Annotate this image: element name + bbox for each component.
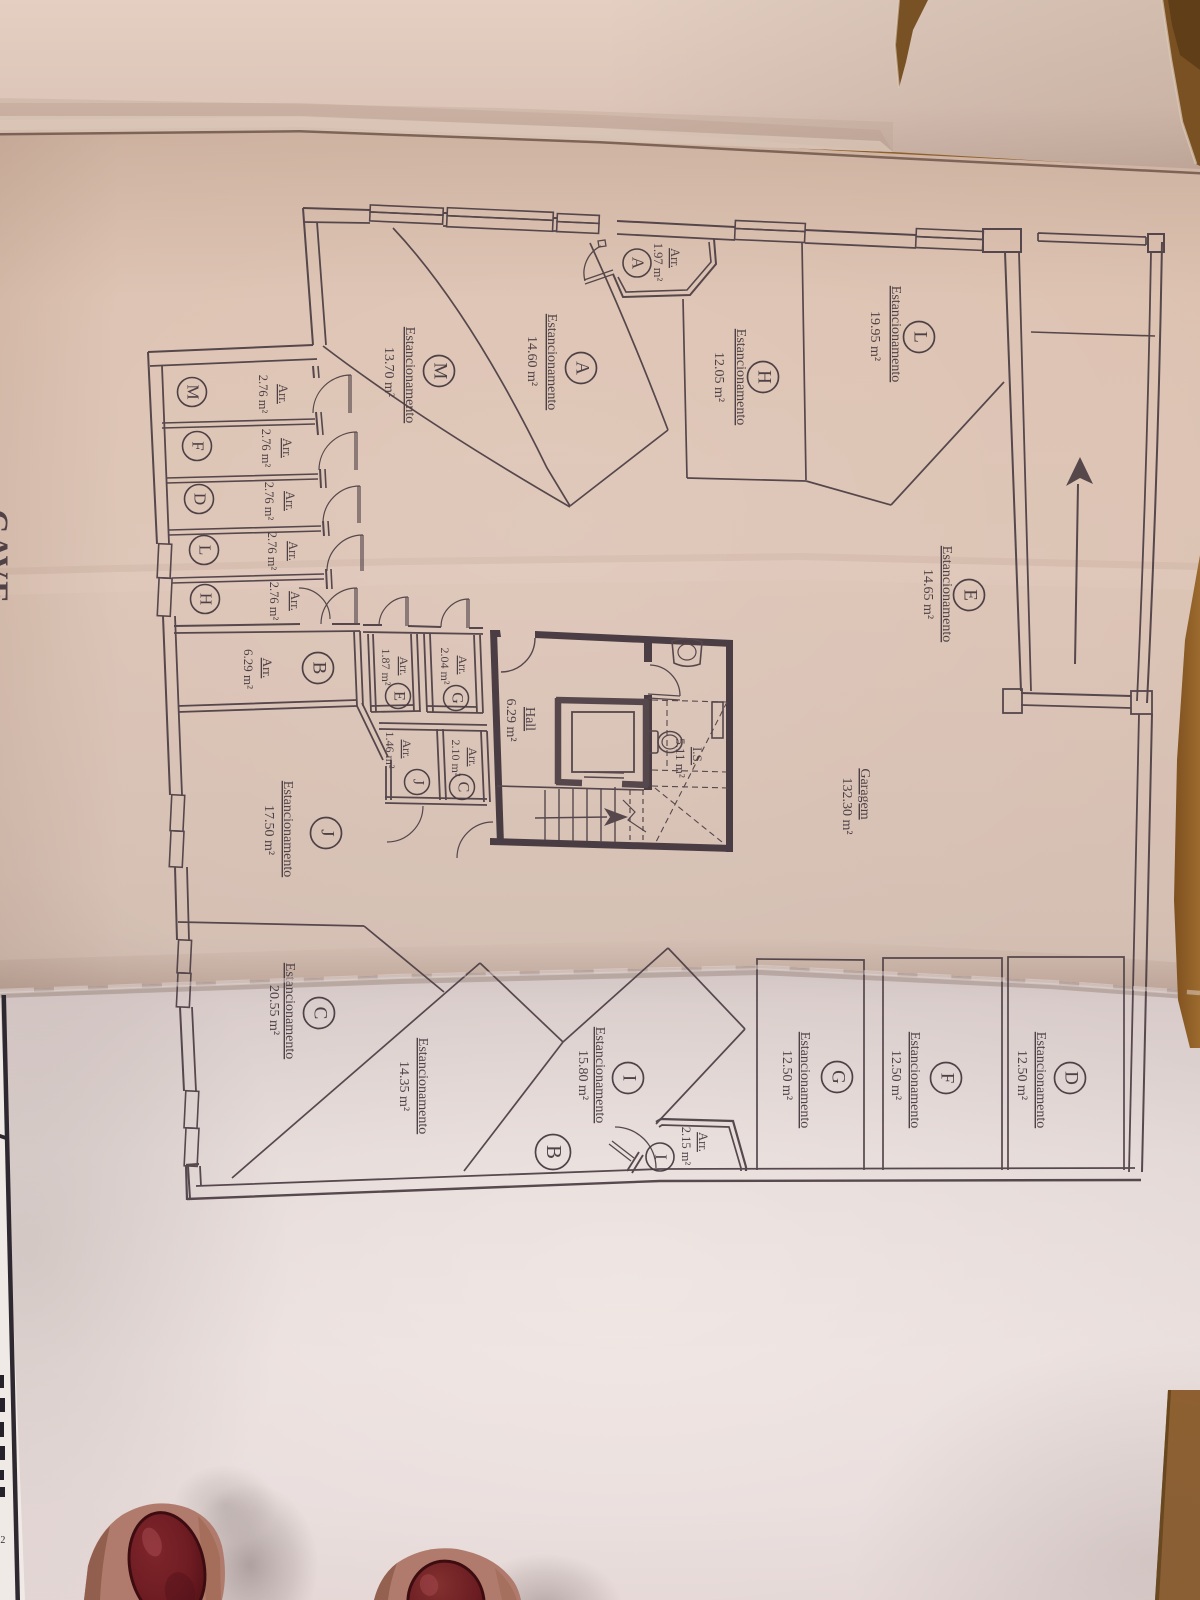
svg-text:Arr.: Arr. [668,248,682,268]
svg-text:C: C [455,782,472,793]
svg-text:B: B [309,662,330,675]
svg-text:J: J [410,779,427,785]
svg-text:I: I [619,1075,640,1081]
svg-text:Arr.: Arr. [397,657,411,676]
svg-text:Estancionamento: Estancionamento [280,781,295,877]
svg-text:13.70 m²: 13.70 m² [381,347,396,397]
svg-text:D: D [191,493,210,505]
svg-text:L: L [196,545,215,555]
svg-text:1.87 m²: 1.87 m² [379,649,393,686]
svg-text:6.29 m²: 6.29 m² [503,698,518,741]
svg-text:Arr.: Arr. [283,491,297,511]
svg-text:2.76 m²: 2.76 m² [262,482,276,521]
svg-text:15.80 m²: 15.80 m² [575,1050,590,1100]
svg-text:I.S.: I.S. [690,747,705,765]
svg-text:Arr.: Arr. [260,658,275,679]
svg-text:Estancionamento: Estancionamento [282,963,297,1059]
svg-text:E: E [960,589,981,601]
svg-text:Hall: Hall [522,707,537,731]
svg-text:Arr.: Arr. [280,438,294,458]
svg-text:Arr.: Arr. [456,656,470,675]
svg-text:Estancionamento: Estancionamento [544,314,559,410]
svg-text:A: A [572,361,593,375]
svg-text:6.29 m²: 6.29 m² [241,649,256,689]
svg-text:1.97 m²: 1.97 m² [651,243,665,282]
svg-text:G: G [828,1070,849,1084]
svg-text:Arr.: Arr. [466,748,480,767]
svg-text:H: H [197,593,216,605]
svg-text:2.76 m²: 2.76 m² [265,532,279,571]
svg-text:I: I [652,1154,671,1160]
svg-text:14.35 m²: 14.35 m² [396,1061,411,1111]
svg-text:L: L [910,331,931,343]
svg-text:Estancionamento: Estancionamento [797,1032,812,1128]
svg-text:C: C [310,1007,331,1020]
svg-text:17.50 m²: 17.50 m² [261,805,276,855]
svg-text:2.15 m²: 2.15 m² [679,1127,693,1166]
svg-text:14.65 m²: 14.65 m² [920,569,935,619]
svg-text:Estancionamento: Estancionamento [888,286,903,382]
svg-text:F: F [189,441,208,450]
svg-text:5.11 m²: 5.11 m² [673,738,688,778]
svg-text:E: E [391,691,408,701]
svg-text:Estancionamento: Estancionamento [592,1027,607,1123]
svg-text:CAVE: CAVE [0,509,14,604]
svg-text:H: H [754,370,775,384]
svg-text:A: A [629,257,648,270]
svg-text:M: M [430,363,451,380]
svg-text:-2: -2 [0,1535,5,1546]
svg-text:Garagem: Garagem [857,768,872,819]
svg-text:Estancionamento: Estancionamento [907,1032,922,1128]
svg-text:132.30 m²: 132.30 m² [839,777,854,834]
svg-text:Arr.: Arr. [400,740,414,759]
svg-text:D: D [1061,1071,1082,1085]
svg-text:20.55 m²: 20.55 m² [266,985,281,1035]
svg-text:19.95 m²: 19.95 m² [867,311,882,361]
svg-text:Estancionamento: Estancionamento [1033,1032,1048,1128]
svg-text:14.60 m²: 14.60 m² [524,336,539,386]
svg-text:J: J [317,829,338,836]
svg-text:Arr.: Arr. [276,384,290,404]
svg-text:Arr.: Arr. [286,541,300,561]
svg-text:Arr.: Arr. [696,1132,710,1152]
svg-text:B: B [542,1145,566,1159]
svg-text:Estancionamento: Estancionamento [939,546,954,642]
svg-text:12.50 m²: 12.50 m² [779,1050,794,1100]
svg-text:M: M [184,384,203,399]
svg-text:12.50 m²: 12.50 m² [888,1050,903,1100]
svg-text:Arr.: Arr. [288,591,302,611]
svg-text:12.50 m²: 12.50 m² [1014,1050,1029,1100]
svg-text:2.76 m²: 2.76 m² [267,582,281,621]
svg-text:2.76 m²: 2.76 m² [256,375,270,414]
svg-text:2.76 m²: 2.76 m² [259,429,273,468]
svg-text:2.04 m²: 2.04 m² [438,648,452,685]
svg-text:Estancionamento: Estancionamento [415,1038,430,1134]
svg-text:F: F [937,1073,958,1084]
svg-text:Estancionamento: Estancionamento [402,327,417,423]
svg-text:1.46 m²: 1.46 m² [383,732,397,769]
svg-text:2.10 m²: 2.10 m² [449,740,463,777]
svg-text:12.05 m²: 12.05 m² [711,352,726,402]
svg-text:G: G [449,692,466,704]
svg-text:Estancionamento: Estancionamento [733,329,748,425]
